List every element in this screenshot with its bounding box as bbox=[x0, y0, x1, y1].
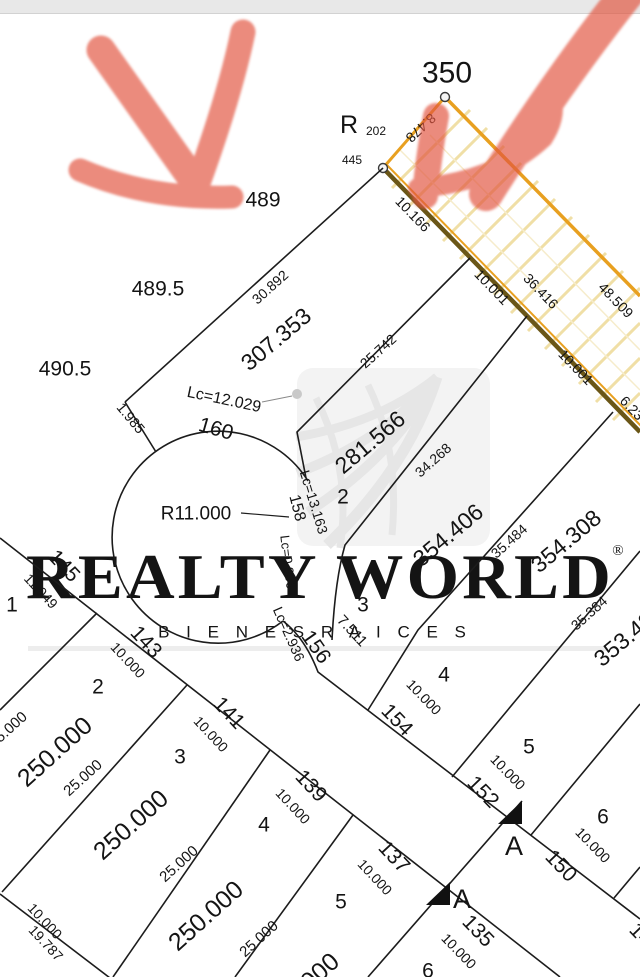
lbl-3l: 3 bbox=[174, 746, 186, 769]
lot-line-left-1-2 bbox=[0, 613, 97, 710]
red-arrow-stroke-right bbox=[197, 32, 243, 186]
map-labels: 350R2024458.47810.166489489.5490.530.892… bbox=[0, 57, 640, 977]
lbl-250000c: 250.000 bbox=[163, 875, 249, 956]
lot-line-6-7-right bbox=[614, 867, 640, 898]
survey-map-canvas: REALTY WORLD ® B I E N E S R A I C E S bbox=[0, 0, 640, 977]
lbl-lc12029: Lc=12.029 bbox=[185, 384, 262, 416]
lbl-A1: A bbox=[505, 831, 523, 861]
lbl-489: 489 bbox=[245, 189, 280, 212]
red-arrow-stroke-left bbox=[101, 50, 196, 184]
lbl-4r: 4 bbox=[438, 664, 450, 687]
lbl-350: 350 bbox=[422, 57, 472, 90]
watermark-realty-world: REALTY WORLD bbox=[26, 542, 614, 612]
lbl-154: 154 bbox=[377, 699, 418, 740]
lot-line-5-6-right bbox=[531, 704, 640, 835]
lbl-4895: 489.5 bbox=[132, 278, 185, 301]
lbl-4905: 490.5 bbox=[39, 358, 92, 381]
lbl-445: 445 bbox=[342, 153, 362, 167]
lbl-25000a: 25.000 bbox=[0, 708, 31, 751]
lbl-250000d: 250.000 bbox=[259, 947, 345, 977]
lbl-25000b: 25.000 bbox=[60, 756, 105, 799]
red-tip-stroke bbox=[425, 116, 436, 196]
lbl-1l: 1 bbox=[6, 594, 18, 617]
lbl-202: 202 bbox=[366, 124, 386, 138]
lbl-25000c: 25.000 bbox=[156, 842, 201, 885]
plat-map-page: REALTY WORLD ® B I E N E S R A I C E S bbox=[0, 0, 640, 977]
lbl-2l: 2 bbox=[92, 676, 104, 699]
top-strip bbox=[0, 0, 640, 13]
lbl-6r: 6 bbox=[597, 806, 609, 829]
lbl-5r: 5 bbox=[523, 736, 535, 759]
lbl-152: 152 bbox=[463, 771, 504, 812]
lc-leader-line bbox=[262, 396, 292, 402]
radius-leader-line bbox=[241, 513, 289, 517]
lbl-4l: 4 bbox=[258, 814, 270, 837]
section-triangle-icon-2 bbox=[426, 882, 450, 905]
lbl-25000d: 25.000 bbox=[236, 917, 281, 960]
lbl-6l: 6 bbox=[422, 960, 434, 977]
lbl-150: 150 bbox=[541, 845, 582, 886]
lbl-25742: 25.742 bbox=[357, 331, 400, 372]
lbl-A2: A bbox=[453, 884, 471, 914]
lbl-5l: 5 bbox=[335, 891, 347, 914]
survey-node-350 bbox=[441, 93, 450, 102]
lbl-30892: 30.892 bbox=[249, 267, 292, 308]
lbl-160: 160 bbox=[196, 413, 236, 445]
lbl-R: R bbox=[340, 111, 358, 139]
lbl-36416: 36.416 bbox=[520, 270, 561, 312]
lbl-148: 148 bbox=[625, 918, 640, 959]
lbl-10000r6: 10.000 bbox=[572, 824, 613, 866]
red-marker-annotations bbox=[80, 0, 628, 197]
survey-dot bbox=[292, 389, 302, 399]
lbl-3r: 3 bbox=[357, 594, 369, 617]
lbl-307353: 307.353 bbox=[236, 302, 316, 375]
lbl-2r: 2 bbox=[337, 486, 349, 509]
lbl-250000b: 250.000 bbox=[88, 784, 174, 865]
watermark-registered-icon: ® bbox=[612, 543, 623, 559]
street-edge-northeast bbox=[283, 621, 640, 919]
lbl-r11000: R11.000 bbox=[161, 504, 231, 525]
